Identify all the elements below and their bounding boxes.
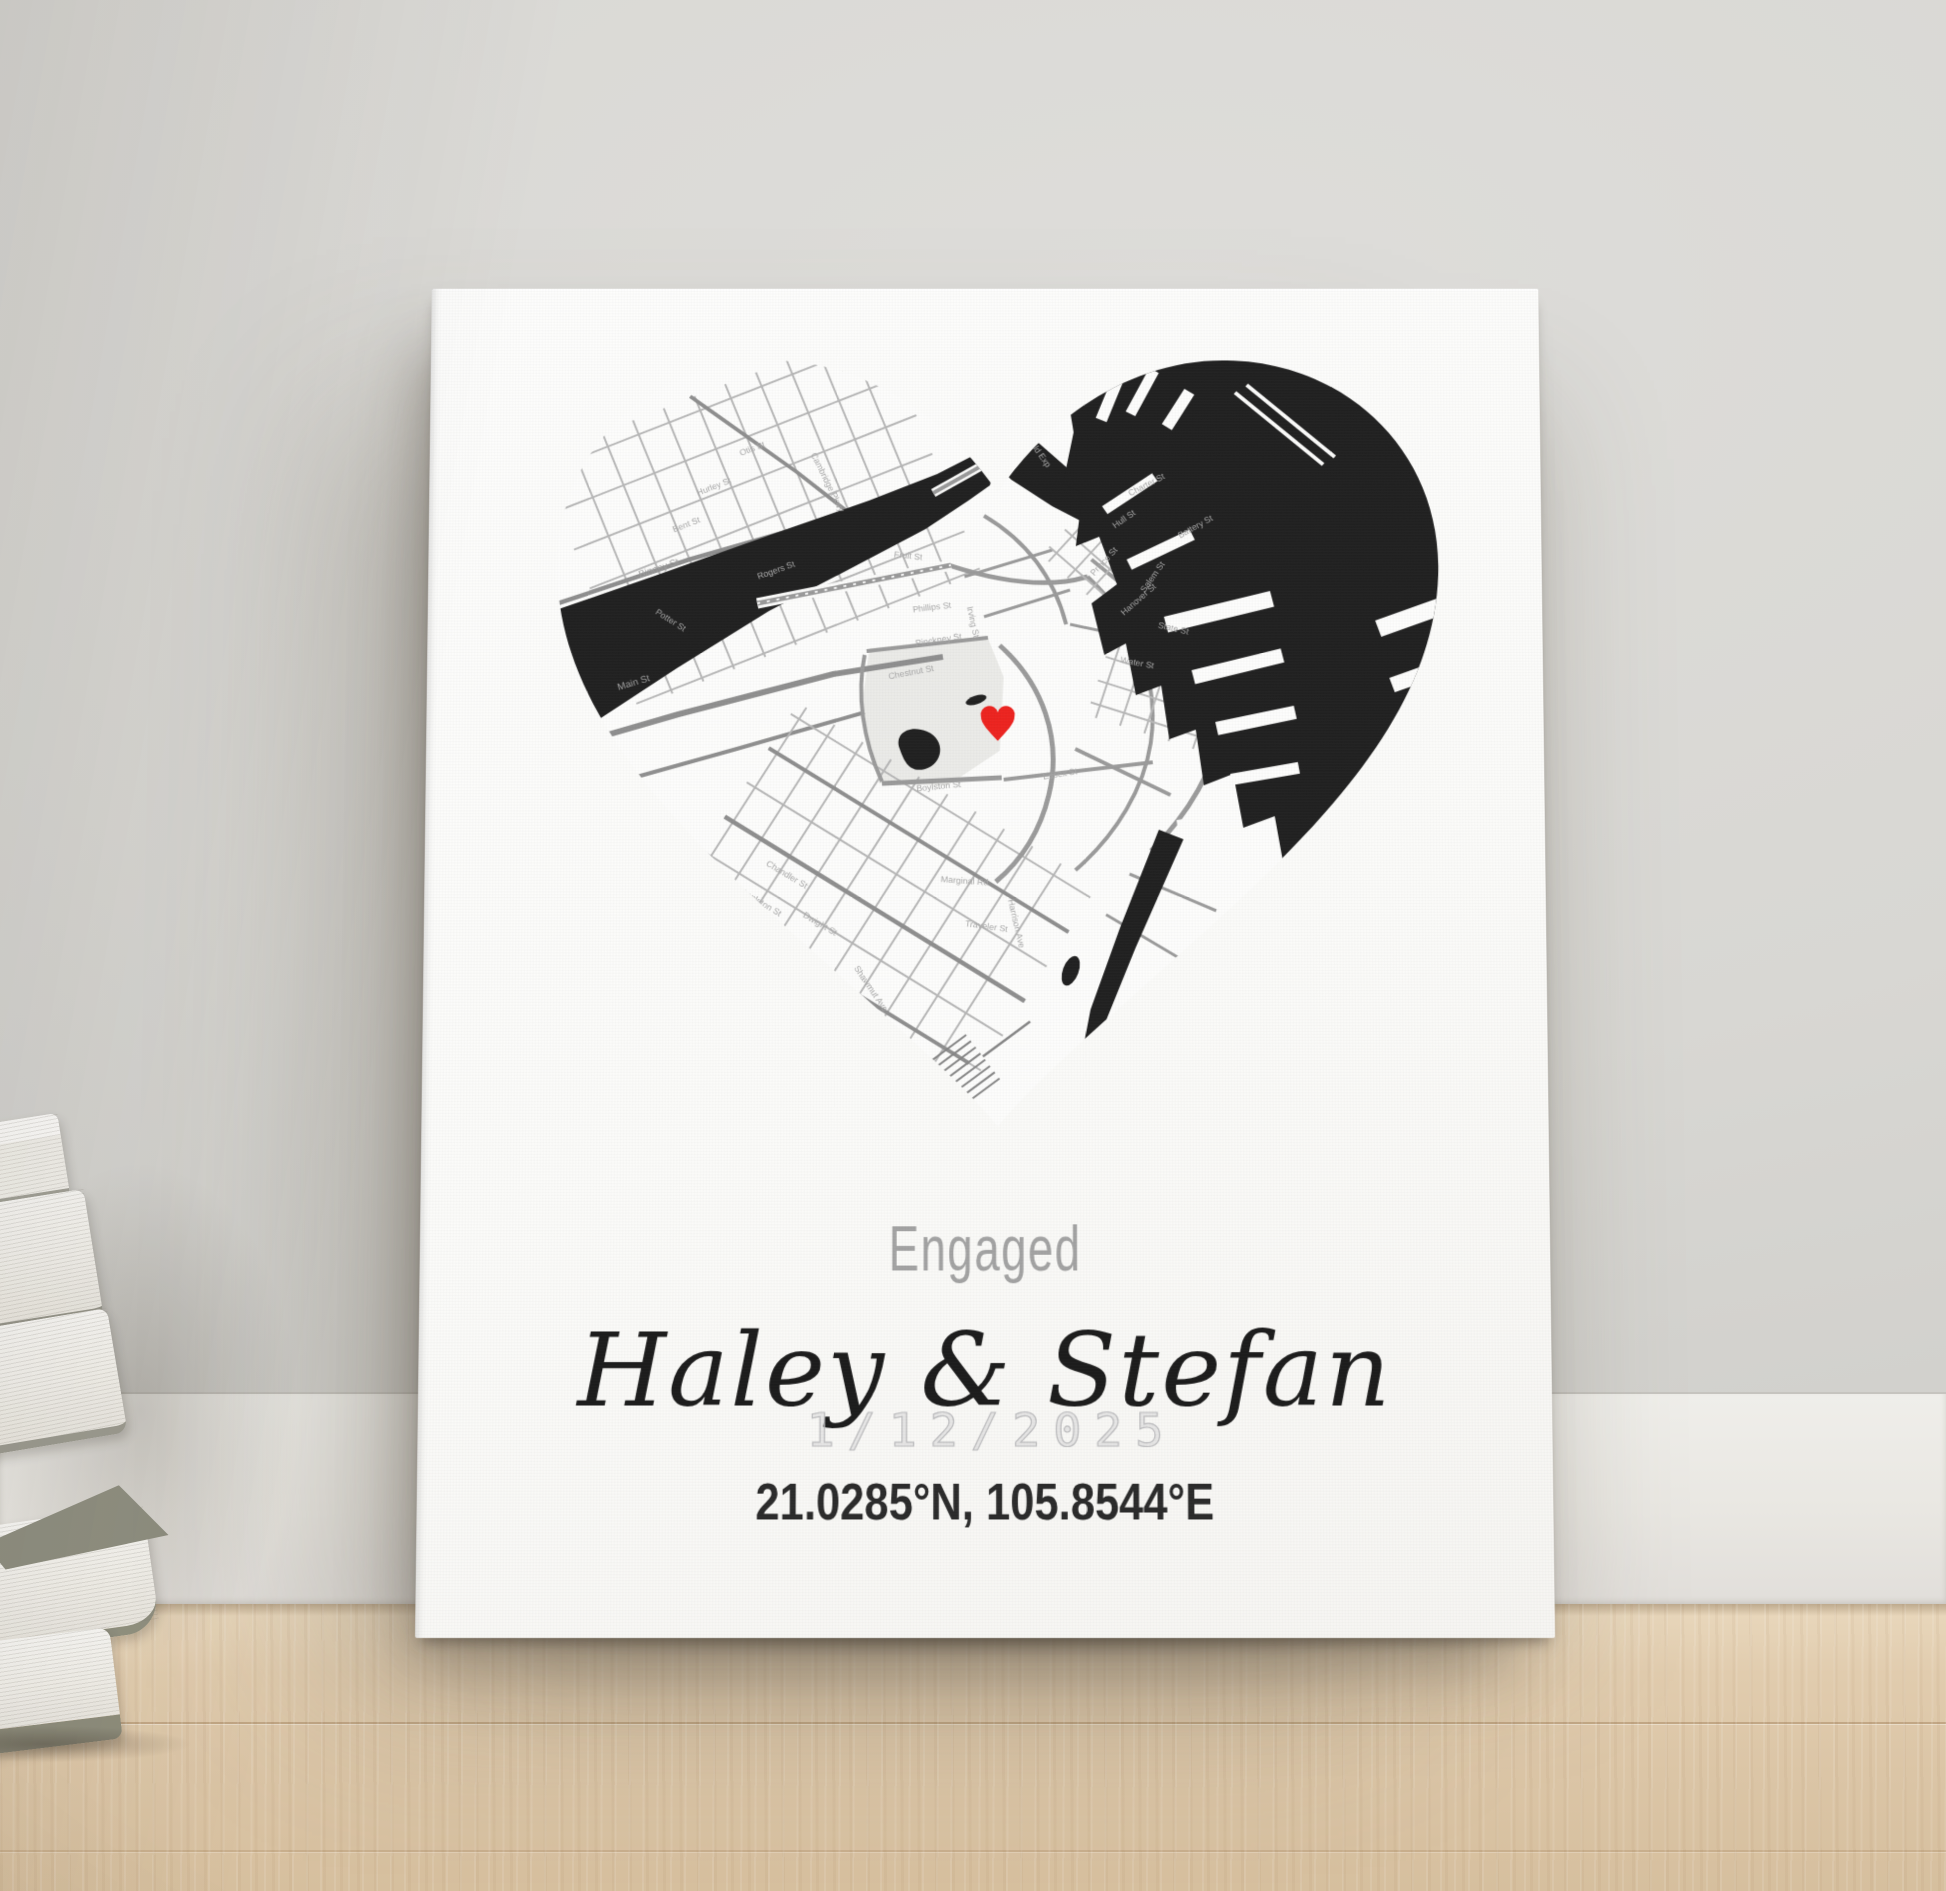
heart-map: Otis St Hurley St Bent St Binney St Roge… [537,340,1459,1138]
room-scene: Otis St Hurley St Bent St Binney St Roge… [0,0,1946,1891]
coordinates-label: 21.0285°N, 105.8544°E [416,1474,1553,1532]
occasion-label: Engaged [419,1215,1550,1284]
floor-plank-seam [0,1850,1946,1852]
canvas-print: Otis St Hurley St Bent St Binney St Roge… [415,289,1555,1638]
book-floor-shadow [0,1718,255,1770]
date-label: 1/12/2025 [417,1404,1553,1459]
book [0,1308,128,1474]
occasion-text: Engaged [888,1215,1081,1284]
book-stack [0,1120,185,1740]
coordinates-text: 21.0285°N, 105.8544°E [756,1474,1215,1532]
